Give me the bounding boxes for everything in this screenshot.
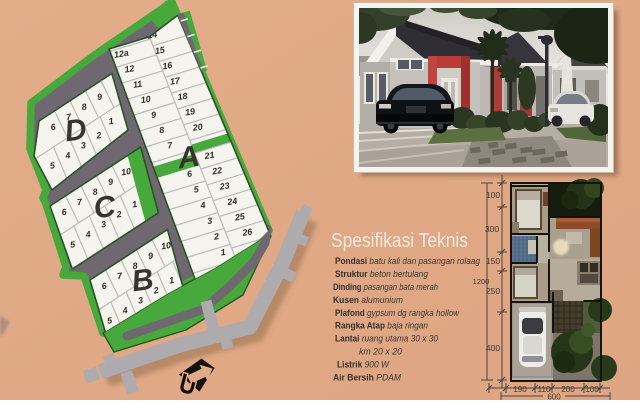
svg-text:250: 250 xyxy=(486,286,500,296)
svg-text:Rangka Atap baja ringan: Rangka Atap baja ringan xyxy=(335,321,428,332)
svg-text:23: 23 xyxy=(218,180,230,192)
svg-text:Kusen alumunium: Kusen alumunium xyxy=(333,295,403,306)
svg-text:Air Bersih PDAM: Air Bersih PDAM xyxy=(333,372,401,383)
svg-text:Spesifikasi Teknis: Spesifikasi Teknis xyxy=(331,230,468,252)
svg-text:Lantai ruang utama 30 x 30: Lantai ruang utama 30 x 30 xyxy=(335,334,439,345)
svg-text:Pondasi batu kali dan pasangan: Pondasi batu kali dan pasangan rolaag xyxy=(335,256,481,267)
svg-text:25: 25 xyxy=(233,211,245,223)
svg-text:Plafond gypsum dg rangka hollo: Plafond gypsum dg rangka hollow xyxy=(335,308,460,319)
svg-text:1200: 1200 xyxy=(473,277,490,286)
svg-text:Listrik 900 W: Listrik 900 W xyxy=(337,359,390,370)
svg-text:B: B xyxy=(130,263,156,299)
svg-text:12: 12 xyxy=(124,63,135,74)
svg-text:190: 190 xyxy=(513,385,527,394)
svg-text:11: 11 xyxy=(132,79,143,90)
svg-text:21: 21 xyxy=(203,150,215,162)
svg-text:10: 10 xyxy=(120,166,131,177)
svg-text:600: 600 xyxy=(547,393,561,401)
svg-text:20: 20 xyxy=(191,121,203,133)
svg-text:22: 22 xyxy=(211,165,223,177)
svg-text:10: 10 xyxy=(140,94,151,105)
svg-text:Dinding pasangan bata merah: Dinding pasangan bata merah xyxy=(333,282,438,293)
svg-text:300: 300 xyxy=(485,224,499,234)
svg-text:Struktur beton bertulang: Struktur beton bertulang xyxy=(335,269,429,280)
svg-text:100: 100 xyxy=(585,385,599,394)
svg-text:24: 24 xyxy=(226,196,238,208)
svg-text:400: 400 xyxy=(486,343,500,353)
svg-text:26: 26 xyxy=(241,226,253,238)
svg-text:15: 15 xyxy=(154,45,165,56)
svg-text:100: 100 xyxy=(486,190,500,200)
svg-text:km 20 x 20: km 20 x 20 xyxy=(359,347,403,358)
svg-text:19: 19 xyxy=(184,106,195,117)
svg-text:16: 16 xyxy=(162,60,173,71)
svg-text:A: A xyxy=(175,140,202,176)
svg-text:D: D xyxy=(63,113,89,149)
svg-text:150: 150 xyxy=(486,256,500,266)
svg-text:18: 18 xyxy=(177,91,188,102)
svg-text:200: 200 xyxy=(561,385,575,394)
